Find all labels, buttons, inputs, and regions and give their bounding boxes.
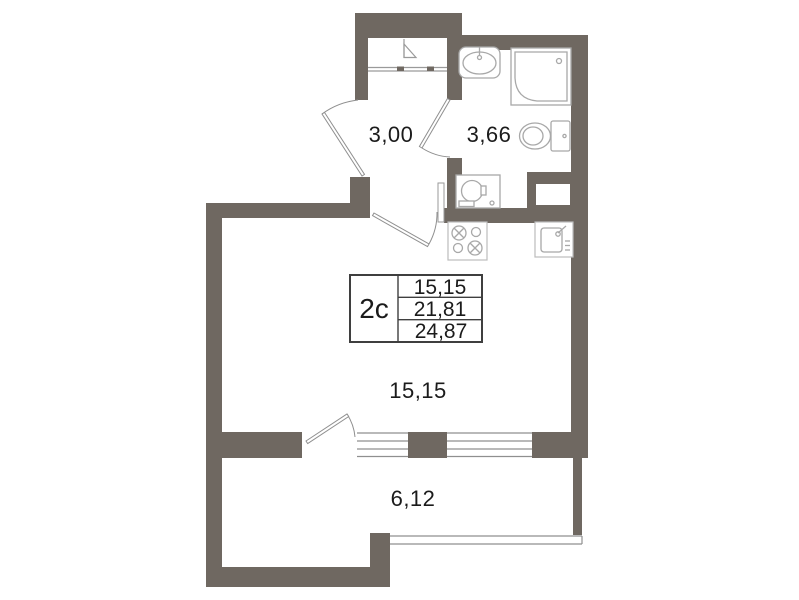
area-value-interior: 21,81 — [414, 298, 467, 321]
door-leaf — [373, 213, 430, 247]
toilet-icon — [520, 121, 571, 151]
rod-bracket — [397, 67, 404, 72]
wardrobe — [368, 39, 447, 71]
wall-segment — [408, 432, 447, 458]
shower-icon — [511, 48, 571, 105]
burner — [454, 244, 463, 253]
unit-type-label: 2c — [359, 293, 389, 324]
wall-segment — [206, 432, 302, 458]
floor-plan-drawing: 2c 15,15 21,81 24,87 3,00 3,66 15,15 6,1… — [0, 0, 799, 600]
room-label-hallway: 3,00 — [369, 122, 414, 147]
stove-icon — [448, 222, 487, 260]
floor-plan: 2c 15,15 21,81 24,87 3,00 3,66 15,15 6,1… — [0, 0, 799, 600]
door-leaf — [419, 99, 450, 149]
wall-segment — [206, 203, 370, 218]
hanger-icon — [404, 39, 416, 58]
wall-segment — [370, 533, 390, 587]
door-jamb — [438, 183, 444, 222]
wall-segment — [573, 458, 582, 535]
room-label-living-room: 15,15 — [389, 378, 447, 403]
room-label-balcony: 6,12 — [391, 486, 436, 511]
entrance-door — [322, 100, 365, 176]
washing-machine-icon — [456, 175, 500, 208]
room-label-bathroom: 3,66 — [467, 122, 512, 147]
area-table: 2c 15,15 21,81 24,87 — [350, 275, 482, 343]
wall-segment — [355, 13, 368, 100]
bathroom-door — [419, 99, 450, 158]
door-leaf — [322, 112, 365, 176]
door-swing-arc — [422, 148, 450, 157]
rod-bracket — [427, 67, 434, 72]
balcony-door — [306, 414, 355, 444]
burner — [472, 228, 481, 237]
area-value-total: 24,87 — [415, 320, 468, 343]
burner — [468, 241, 482, 255]
wall-segment — [355, 13, 462, 38]
door-swing-arc — [347, 414, 355, 437]
wall-segment — [206, 203, 222, 587]
door-swing-arc — [429, 212, 437, 244]
wall-segment — [532, 432, 588, 458]
kitchen-sink-icon — [535, 222, 573, 257]
door-swing-arc — [322, 100, 358, 114]
burner — [452, 226, 466, 240]
vent-shaft — [536, 184, 570, 205]
living-room-door — [373, 212, 438, 247]
bath-sink-icon — [459, 47, 500, 78]
balcony-glazing — [390, 536, 582, 544]
area-value-living: 15,15 — [414, 276, 467, 299]
wall-segment — [206, 567, 387, 587]
door-leaf — [306, 414, 349, 444]
